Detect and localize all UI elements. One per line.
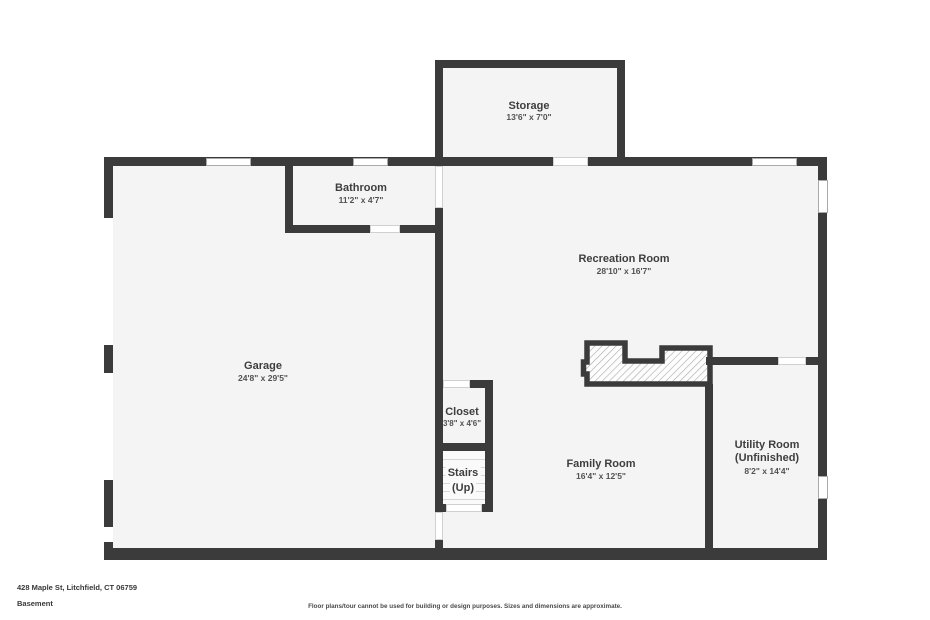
wall-central-vertical	[435, 208, 443, 512]
wall-closet-bottom	[435, 443, 493, 451]
wall-storage-right	[617, 60, 625, 157]
wall-exterior-left-seg	[104, 480, 113, 527]
wall-utility-top-seg	[706, 357, 778, 365]
room-dims-family: 16'4" x 12'5"	[576, 471, 626, 481]
footer-address: 428 Maple St, Litchfield, CT 06759	[17, 583, 137, 592]
room-dims-bathroom: 11'2" x 4'7"	[339, 195, 384, 205]
wall-utility-top-seg	[806, 357, 827, 365]
wall-exterior-left-seg	[104, 345, 113, 373]
wall-storage-top	[435, 60, 625, 68]
wall-familyroom-utility	[705, 384, 713, 548]
room-dims-closet: 3'8" x 4'6"	[443, 419, 481, 429]
wall-stairs-bottom-stub	[435, 504, 446, 512]
room-label-closet: Closet	[445, 406, 479, 418]
room-dims-recreation: 28'10" x 16'7"	[597, 266, 652, 276]
wall-bathroom-bottom-seg	[285, 225, 370, 233]
footer-disclaimer: Floor plans/tour cannot be used for buil…	[0, 603, 930, 610]
wall-central-vertical-stub	[435, 540, 443, 560]
room-label-family: Family Room	[566, 458, 635, 470]
bathroom-right-door-opening	[435, 166, 443, 208]
room-label-storage: Storage	[509, 100, 550, 112]
room-label-recreation: Recreation Room	[578, 253, 669, 265]
window-right-recreation	[818, 180, 828, 213]
window-top-garage	[206, 158, 251, 166]
wall-storage-left	[435, 60, 443, 157]
room-label-utility-status: (Unfinished)	[735, 452, 799, 464]
bathroom-bottom-door-opening	[370, 225, 400, 233]
room-label-stairs: Stairs	[446, 467, 481, 479]
room-dims-storage: 13'6" x 7'0"	[506, 112, 551, 122]
room-label-bathroom: Bathroom	[335, 182, 387, 194]
window-top-recreation	[752, 158, 797, 166]
window-right-utility	[818, 476, 828, 499]
room-label-stairs-direction: (Up)	[450, 482, 476, 494]
chimney-hatch	[575, 335, 720, 393]
closet-door-opening	[443, 380, 470, 388]
stair-tread	[443, 459, 485, 460]
wall-bathroom-left	[285, 166, 293, 233]
wall-exterior-left-seg	[104, 157, 113, 218]
wall-exterior-left-seg	[104, 542, 113, 560]
room-label-utility: Utility Room	[735, 439, 800, 451]
wall-stairs-bottom-stub	[482, 504, 493, 512]
storage-door-opening	[553, 157, 588, 166]
floorplan-page: { "rooms": { "storage": {"name": "Storag…	[0, 0, 930, 620]
utility-door-opening	[778, 357, 806, 365]
stair-tread	[443, 499, 485, 500]
room-dims-garage: 24'8" x 29'5"	[238, 373, 288, 383]
wall-exterior-bottom	[104, 548, 827, 560]
room-dims-utility: 8'2" x 14'4"	[744, 466, 789, 476]
wall-bathroom-bottom-seg	[400, 225, 443, 233]
room-label-garage: Garage	[244, 360, 282, 372]
stairs-entry-opening	[446, 504, 482, 512]
window-top-bathroom	[353, 158, 388, 166]
garage-familyroom-door-opening	[435, 512, 443, 540]
